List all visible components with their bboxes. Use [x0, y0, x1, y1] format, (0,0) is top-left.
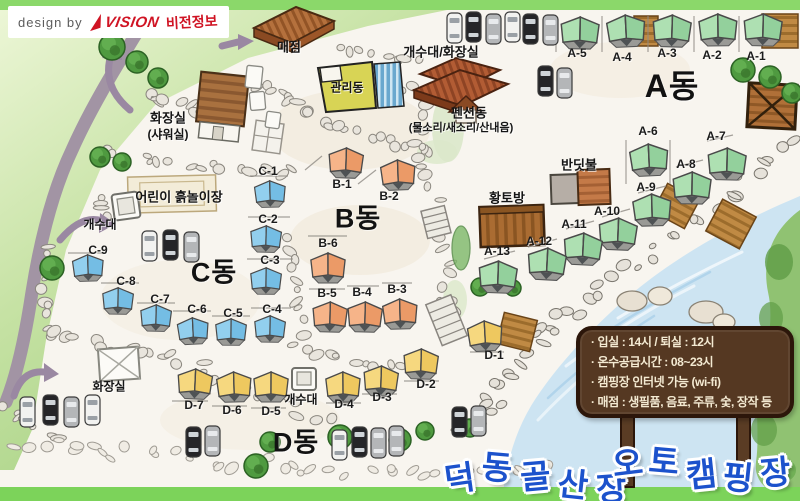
credit-badge: design by VISION 비전정보 — [8, 6, 229, 38]
campsite-tent-C-8 — [103, 288, 134, 315]
tree-icon — [148, 68, 168, 88]
car-icon — [543, 15, 558, 45]
firefly-building — [550, 169, 610, 206]
car-icon — [64, 397, 79, 427]
tree-icon — [126, 51, 148, 73]
car-icon — [85, 395, 100, 425]
car-icon — [142, 231, 157, 261]
tree-icon — [731, 58, 755, 82]
kids-playground-area — [128, 175, 217, 213]
tree-icon — [416, 422, 434, 440]
car-icon — [452, 407, 467, 437]
car-icon — [447, 13, 462, 43]
car-icon — [557, 68, 572, 98]
car-icon — [186, 427, 201, 457]
car-icon — [538, 66, 553, 96]
campsite-tent-A-2 — [699, 14, 737, 46]
car-icon — [163, 230, 178, 260]
map-drawing — [0, 0, 800, 501]
car-icon — [389, 426, 404, 456]
admin-building — [318, 62, 404, 112]
tall-bush — [452, 226, 470, 270]
campsite-tent-D-4 — [326, 372, 360, 402]
campsite-tent-C-3 — [251, 268, 282, 295]
campsite-tent-D-5 — [254, 372, 288, 402]
info-sign: · 입실 : 14시 / 퇴실 : 12시· 온수공급시간 : 08~23시· … — [576, 326, 794, 418]
campsite-tent-C-4 — [255, 316, 286, 343]
sign-line: · 매점 : 생필품, 음료, 주류, 숯, 장작 등 — [591, 392, 779, 412]
sink-station-west — [111, 191, 140, 220]
brand-logo: VISION — [103, 14, 160, 31]
bottom-green-strip — [0, 487, 800, 501]
car-icon — [352, 427, 367, 457]
car-icon — [184, 232, 199, 262]
sink-station-south — [292, 368, 316, 390]
tree-icon — [244, 454, 268, 478]
car-icon — [523, 14, 538, 44]
car-icon — [332, 430, 347, 460]
car-icon — [471, 406, 486, 436]
brand-swoosh-icon — [90, 13, 101, 30]
sign-line: · 입실 : 14시 / 퇴실 : 12시 — [591, 332, 779, 352]
tree-icon — [113, 153, 131, 171]
car-icon — [466, 12, 481, 42]
campsite-tent-B-6 — [311, 253, 345, 283]
campsite-tent-C-5 — [216, 319, 247, 346]
sign-line: · 온수공급시간 : 08~23시 — [591, 352, 779, 372]
car-icon — [43, 395, 58, 425]
clay-room-building — [479, 205, 544, 247]
car-icon — [505, 12, 520, 42]
credit-text: design by — [18, 15, 83, 30]
campground-map: A-1A-2A-3A-4A-5A-6A-7A-8A-9A-10A-11A-12A… — [0, 0, 800, 501]
restroom-south-structure — [98, 347, 140, 382]
sign-post-left — [620, 410, 635, 488]
tree-icon — [260, 432, 280, 452]
tree-icon — [782, 83, 800, 103]
tree-icon — [759, 66, 781, 88]
sign-line: · 캠핑장 인터넷 가능 (wi-fi) — [591, 372, 779, 392]
car-icon — [205, 426, 220, 456]
brand-logo-korean: 비전정보 — [165, 11, 218, 34]
car-icon — [486, 14, 501, 44]
tree-icon — [90, 147, 110, 167]
car-icon — [20, 397, 35, 427]
tree-icon — [40, 256, 64, 280]
car-icon — [371, 428, 386, 458]
sign-post-right — [736, 410, 751, 488]
